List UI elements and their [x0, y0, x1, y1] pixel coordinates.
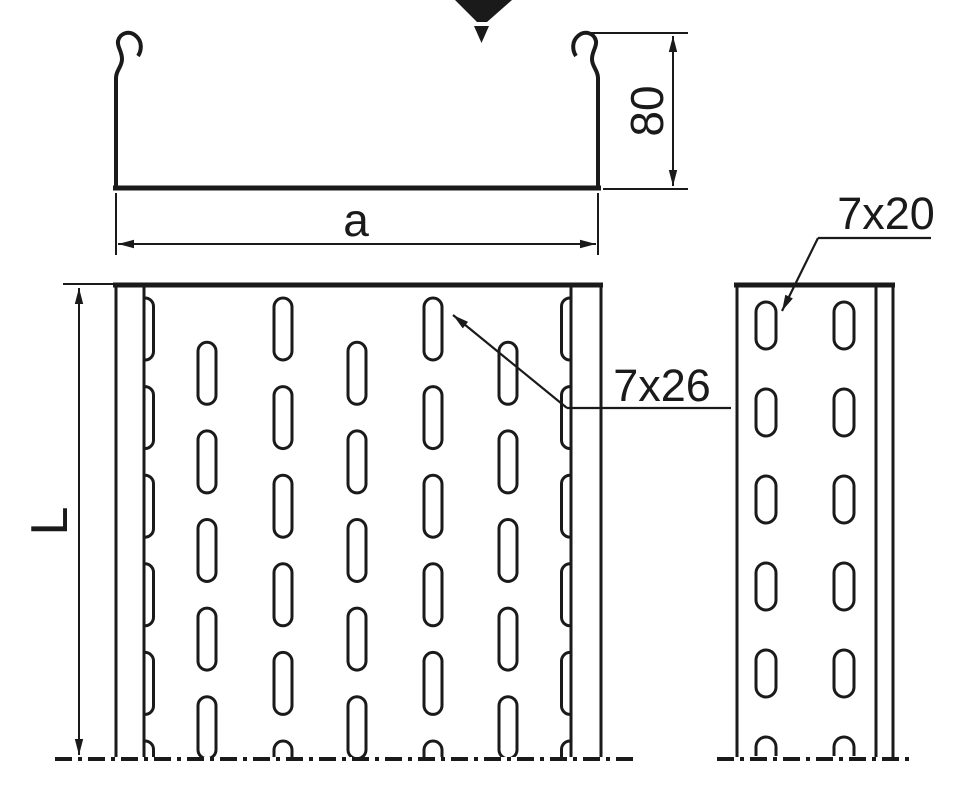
- plan-slot-size-label: 7x26: [613, 360, 711, 411]
- slot: [198, 608, 216, 670]
- slot: [756, 650, 776, 697]
- slot: [348, 520, 366, 582]
- profile-right-wall-hook: [573, 33, 598, 186]
- cable-tray-drawing-page: a 80 L: [0, 0, 974, 800]
- slot: [274, 652, 292, 714]
- slot: [499, 431, 517, 493]
- slot: [198, 520, 216, 582]
- slot: [834, 476, 854, 523]
- slot: [424, 564, 442, 626]
- profile-left-wall-hook: [116, 33, 141, 186]
- slot: [756, 563, 776, 610]
- side-callout-arrow: [782, 238, 818, 311]
- slot: [348, 608, 366, 670]
- slot: [756, 302, 776, 349]
- slot: [348, 342, 366, 404]
- slot: [756, 389, 776, 436]
- plan-slot-callout: 7x26: [453, 315, 731, 411]
- slot: [834, 302, 854, 349]
- slot: [198, 431, 216, 493]
- side-slot-pattern: [756, 302, 854, 784]
- slot: [424, 298, 442, 360]
- slot: [424, 652, 442, 714]
- slot: [274, 564, 292, 626]
- length-dimension: L: [21, 284, 113, 755]
- width-dimension-label: a: [343, 194, 369, 246]
- slot: [348, 697, 366, 759]
- side-slot-callout: 7x20: [782, 188, 935, 311]
- cross-section-view: a 80: [113, 0, 688, 255]
- slot: [198, 697, 216, 759]
- side-view: 7x20: [717, 188, 935, 784]
- plan-view: L 7x26: [21, 283, 731, 800]
- slot: [499, 697, 517, 759]
- plan-callout-arrow: [453, 315, 567, 408]
- plan-slot-pattern: [144, 298, 571, 800]
- length-dimension-label: L: [21, 507, 79, 536]
- slot: [424, 387, 442, 449]
- slot: [274, 741, 292, 800]
- width-dimension: a: [116, 193, 598, 255]
- slot: [274, 387, 292, 449]
- slot: [834, 650, 854, 697]
- slot: [424, 475, 442, 537]
- slot: [274, 298, 292, 360]
- section-arrow-icon: [455, 0, 512, 43]
- technical-drawing-canvas: a 80 L: [0, 0, 974, 800]
- slot: [499, 608, 517, 670]
- height-dimension: 80: [591, 33, 688, 189]
- slot: [198, 342, 216, 404]
- slot: [499, 342, 517, 404]
- slot: [424, 741, 442, 800]
- slot: [756, 476, 776, 523]
- slot: [834, 389, 854, 436]
- slot: [274, 475, 292, 537]
- slot: [348, 431, 366, 493]
- side-slot-size-label: 7x20: [837, 188, 935, 239]
- height-dimension-label: 80: [621, 85, 673, 136]
- slot: [499, 520, 517, 582]
- slot: [834, 563, 854, 610]
